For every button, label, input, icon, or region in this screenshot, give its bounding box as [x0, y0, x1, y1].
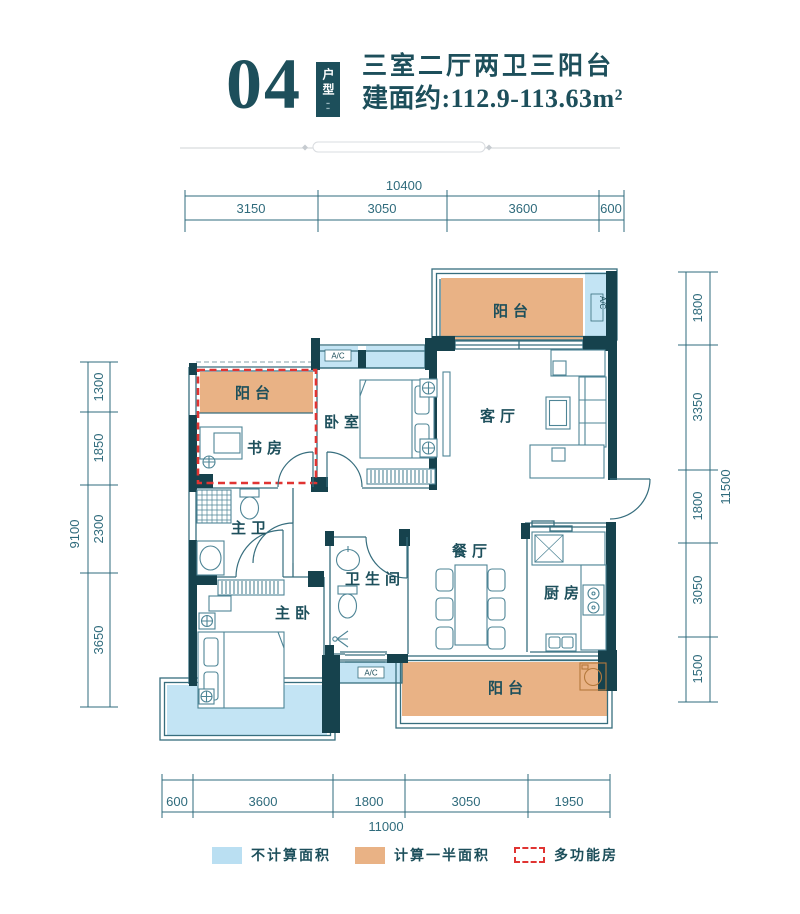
dim-right-total: 11500 [718, 469, 733, 504]
dim-top-seg1: 3150 [237, 201, 266, 216]
dim-bottom-seg1: 600 [166, 794, 188, 809]
legend-swatch-blue [212, 847, 242, 864]
washbasin-icon [337, 546, 360, 571]
layout-title: 三室二厅两卫三阳台 [362, 50, 623, 82]
sink-icon [197, 541, 224, 575]
desk-icon [200, 427, 242, 468]
dim-top-total: 10400 [386, 178, 422, 193]
legend-item-no-area: 不计算面积 [212, 845, 331, 865]
legend: 不计算面积 计算一半面积 多功能房 [212, 845, 642, 865]
dim-left-seg4: 3650 [91, 626, 106, 655]
dim-left-total: 9100 [67, 520, 82, 549]
room-label-study: 书房 [247, 439, 287, 457]
floorplan-page: 04 户型 ▪▪▪▪ 三室二厅两卫三阳台 建面约:112.9-113.63m² [0, 0, 800, 914]
master-bed-icon [198, 580, 284, 708]
legend-label-half-area: 计算一半面积 [394, 845, 490, 865]
ac-label-bedroom: A/C [331, 352, 345, 361]
dim-left-seg2: 1850 [91, 434, 106, 463]
bed-icon [360, 379, 437, 484]
legend-item-multi-room: 多功能房 [514, 845, 618, 865]
dim-top-seg3: 3600 [509, 201, 538, 216]
area-text: 建面约:112.9-113.63m² [362, 82, 623, 115]
room-label-bedroom: 卧室 [324, 413, 364, 431]
room-label-dining: 餐厅 [452, 542, 492, 560]
room-label-balcony-top-right: 阳台 [493, 302, 533, 320]
ac-label-bottom: A/C [364, 669, 378, 678]
toilet2-icon [338, 586, 357, 618]
legend-label-no-area: 不计算面积 [251, 845, 331, 865]
dim-right-seg1: 1800 [690, 294, 705, 323]
room-label-kitchen: 厨房 [544, 584, 584, 602]
dim-bottom-seg3: 1800 [355, 794, 384, 809]
header: 04 户型 ▪▪▪▪ 三室二厅两卫三阳台 建面约:112.9-113.63m² [226, 50, 623, 118]
toilet-icon [240, 489, 259, 519]
dim-right-seg5: 1500 [690, 655, 705, 684]
shower-icon [197, 490, 231, 523]
dim-left-seg3: 2300 [91, 515, 106, 544]
sofa-icon [443, 350, 606, 478]
room-label-balcony-top-left: 阳台 [235, 384, 275, 402]
room-label-living: 客厅 [479, 407, 520, 425]
floorplan-drawing: A/C A/C A/C 阳台 卧室 客厅 阳台 书房 主卫 卫生间 餐厅 厨房 … [0, 0, 800, 914]
legend-swatch-orange [355, 847, 385, 864]
entry-door [610, 479, 650, 519]
room-label-master-bedroom: 主卧 [275, 604, 315, 622]
unit-number: 04 [226, 50, 302, 118]
unit-tag-decoration: ▪▪▪▪ [326, 102, 330, 112]
dim-top-seg4: 600 [600, 201, 622, 216]
dim-right-seg3: 1800 [690, 492, 705, 521]
dining-table-icon [436, 565, 505, 649]
unit-type-tag: 户型 ▪▪▪▪ [316, 62, 340, 117]
room-label-bathroom: 卫生间 [345, 570, 405, 588]
legend-label-multi-room: 多功能房 [554, 845, 618, 865]
study-door [278, 452, 313, 487]
dim-bottom-seg5: 1950 [555, 794, 584, 809]
bedroom-window-bay-fill [366, 346, 425, 368]
dim-right-seg4: 3050 [690, 576, 705, 605]
dim-left-seg1: 1300 [91, 373, 106, 402]
unit-tag-label: 户型 [322, 68, 334, 98]
dim-bottom-seg4: 3050 [452, 794, 481, 809]
master-bedroom-door [236, 530, 283, 577]
dim-bottom-total: 11000 [368, 819, 403, 834]
floor-drain-icon [333, 631, 348, 647]
dim-right-seg2: 3350 [690, 393, 705, 422]
legend-item-half-area: 计算一半面积 [355, 845, 490, 865]
dim-bottom-seg2: 3600 [249, 794, 278, 809]
bedroom-door [327, 452, 362, 487]
title-block: 三室二厅两卫三阳台 建面约:112.9-113.63m² [362, 50, 623, 115]
dim-top-seg2: 3050 [368, 201, 397, 216]
header-divider [180, 142, 620, 152]
ac-label-top-right: A/C [598, 296, 607, 310]
room-label-master-bath: 主卫 [231, 519, 271, 537]
legend-swatch-dashed [514, 847, 545, 863]
room-label-balcony-bottom: 阳台 [488, 679, 528, 697]
